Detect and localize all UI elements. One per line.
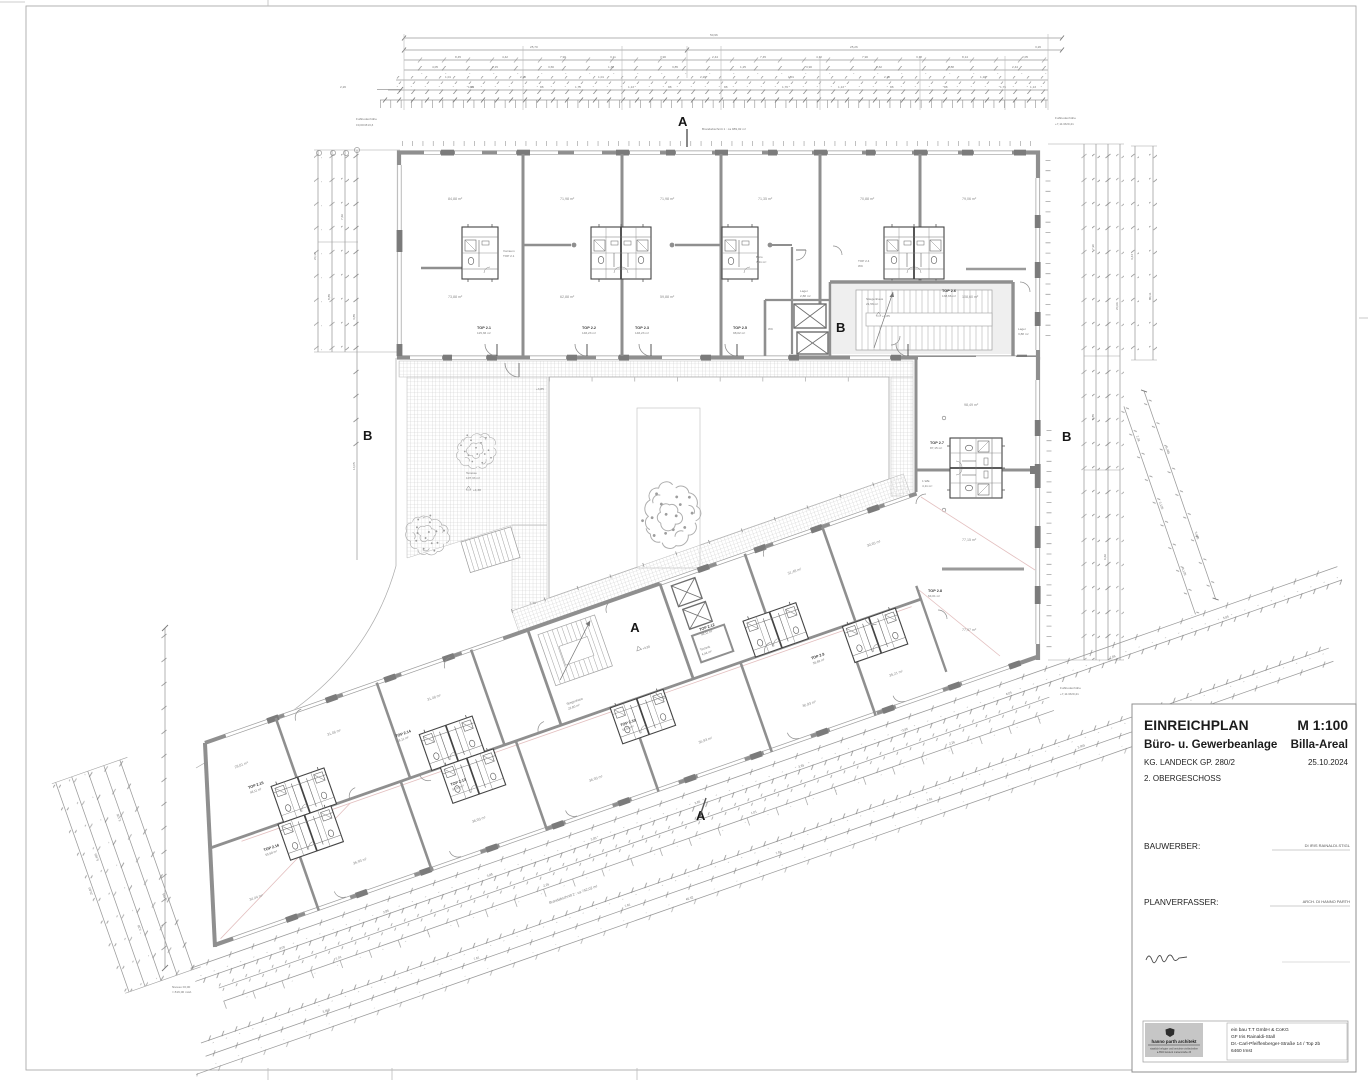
svg-text:TOP 2.5: TOP 2.5 — [733, 326, 747, 330]
svg-text:7,90: 7,90 — [862, 55, 868, 59]
svg-text:7,90: 7,90 — [660, 55, 666, 59]
svg-text:71,98 m²: 71,98 m² — [660, 197, 675, 201]
svg-text:2,05: 2,05 — [1022, 55, 1028, 59]
svg-text:3,26: 3,26 — [1035, 45, 1041, 49]
svg-text:3,88 m²: 3,88 m² — [1018, 332, 1029, 336]
svg-text:ein bau T.T GmbH & CoKG: ein bau T.T GmbH & CoKG — [1231, 1027, 1289, 1033]
svg-text:7,66: 7,66 — [340, 214, 344, 220]
svg-text:3,44: 3,44 — [1130, 254, 1134, 260]
svg-text:64,01 m²: 64,01 m² — [928, 594, 940, 598]
svg-text:TOP 2.1: TOP 2.1 — [503, 254, 515, 258]
svg-text:Terasse: Terasse — [466, 471, 477, 475]
svg-text:77,15 m²: 77,15 m² — [962, 538, 977, 542]
svg-text:115,36 m²: 115,36 m² — [477, 331, 491, 335]
svg-text:+4,38: +4,38 — [473, 488, 481, 492]
svg-text:2. OBERGESCHOSS: 2. OBERGESCHOSS — [1144, 774, 1221, 783]
svg-text:Billa-Areal: Billa-Areal — [1291, 738, 1348, 751]
svg-text:Lager: Lager — [800, 289, 808, 293]
svg-text:1,13: 1,13 — [838, 85, 844, 89]
svg-text:25.10.2024: 25.10.2024 — [1308, 758, 1349, 767]
svg-text:107,33 m²: 107,33 m² — [466, 476, 480, 480]
svg-text:50,96: 50,96 — [710, 33, 718, 37]
svg-text:1,13: 1,13 — [628, 85, 634, 89]
svg-text:62,88 m²: 62,88 m² — [560, 295, 575, 299]
svg-text:20,18: 20,18 — [313, 252, 317, 260]
svg-text:70,88 m²: 70,88 m² — [860, 197, 875, 201]
svg-text:1,38: 1,38 — [608, 65, 614, 69]
svg-text:4,05: 4,05 — [432, 65, 438, 69]
svg-text:8,45: 8,45 — [455, 55, 461, 59]
svg-text:1,18: 1,18 — [980, 75, 986, 79]
svg-text:1,13: 1,13 — [468, 85, 474, 89]
svg-text:B: B — [363, 428, 372, 443]
svg-text:6,66: 6,66 — [1103, 554, 1107, 560]
svg-text:M 1:100: M 1:100 — [1297, 718, 1348, 733]
svg-text:7,90: 7,90 — [1091, 244, 1095, 250]
svg-text:Büro- u. Gewerbeanlage: Büro- u. Gewerbeanlage — [1144, 738, 1278, 751]
svg-text:8,14: 8,14 — [962, 55, 968, 59]
svg-text:1,76: 1,76 — [782, 85, 788, 89]
svg-text:1.WE: 1.WE — [922, 479, 930, 483]
svg-text:A: A — [630, 620, 640, 635]
svg-text:1,76: 1,76 — [1000, 85, 1006, 89]
svg-text:+7,11=820,41: +7,11=820,41 — [1055, 122, 1074, 126]
svg-text:73,88 m²: 73,88 m² — [448, 295, 463, 299]
svg-text:B: B — [836, 320, 845, 335]
svg-text:WC: WC — [768, 327, 774, 331]
svg-text:14,11: 14,11 — [1148, 292, 1152, 300]
svg-text:TOP 2.6: TOP 2.6 — [942, 289, 956, 293]
svg-text:Stiegenhaus: Stiegenhaus — [866, 297, 884, 301]
svg-text:7,90: 7,90 — [560, 55, 566, 59]
svg-text:Vorraum: Vorraum — [503, 249, 515, 253]
svg-text:1,01: 1,01 — [598, 75, 604, 79]
svg-text:8,85: 8,85 — [1091, 414, 1095, 420]
svg-text:TOP 2.8: TOP 2.8 — [928, 589, 942, 593]
svg-text:a-6500 landeck malserstraße 2: a-6500 landeck malserstraße 26 — [1157, 1051, 1192, 1054]
svg-text:6460 Imst: 6460 Imst — [1231, 1048, 1253, 1054]
svg-text:DI IRIS RAINALDI-STIGL: DI IRIS RAINALDI-STIGL — [1305, 843, 1351, 848]
svg-text:4,11 m²: 4,11 m² — [922, 484, 932, 488]
svg-text:88: 88 — [540, 85, 544, 89]
svg-text:hanno parth architekt: hanno parth architekt — [1152, 1039, 1197, 1044]
svg-text:1,76: 1,76 — [575, 85, 581, 89]
svg-text:TOP 2.7: TOP 2.7 — [930, 441, 944, 445]
svg-text:2,44: 2,44 — [1012, 65, 1018, 69]
svg-text:21,56 m²: 21,56 m² — [866, 302, 878, 306]
svg-text:1,01: 1,01 — [788, 75, 794, 79]
svg-text:7,11 m²: 7,11 m² — [756, 260, 766, 264]
svg-text:4,42: 4,42 — [502, 55, 508, 59]
svg-text:PLANVERFASSER:: PLANVERFASSER: — [1144, 897, 1218, 907]
svg-text:+3,85: +3,85 — [882, 314, 890, 318]
svg-text:7,45: 7,45 — [760, 55, 766, 59]
svg-text:79,06 m²: 79,06 m² — [962, 197, 977, 201]
svg-text:20,66: 20,66 — [1115, 302, 1119, 310]
svg-text:EINREICHPLAN: EINREICHPLAN — [1144, 718, 1249, 733]
svg-text:59,88 m²: 59,88 m² — [660, 295, 675, 299]
svg-text:3,85: 3,85 — [672, 65, 678, 69]
svg-text:GF Iris Rainaldi-Stall: GF Iris Rainaldi-Stall — [1231, 1034, 1275, 1040]
svg-text:3,66: 3,66 — [548, 65, 554, 69]
svg-text:146,23 m²: 146,23 m² — [635, 331, 649, 335]
svg-text:25,70: 25,70 — [530, 45, 538, 49]
svg-text:A: A — [678, 114, 688, 129]
svg-text:88: 88 — [724, 85, 728, 89]
svg-text:TOP 2.1: TOP 2.1 — [477, 326, 491, 330]
svg-text:Fußbodenhöhe: Fußbodenhöhe — [1060, 686, 1081, 690]
svg-text:Lager: Lager — [1018, 327, 1026, 331]
svg-text:Brandabschnitt 1 : ca 989,02 m: Brandabschnitt 1 : ca 989,02 m² — [702, 127, 746, 131]
svg-text:2,26: 2,26 — [340, 85, 346, 89]
svg-text:87,15 m²: 87,15 m² — [930, 446, 942, 450]
svg-text:ARCH. DI HANNO PARTH: ARCH. DI HANNO PARTH — [1303, 899, 1351, 904]
svg-text:2,26: 2,26 — [700, 75, 706, 79]
svg-text:98,49 m²: 98,49 m² — [964, 403, 979, 407]
svg-text:77,97 m²: 77,97 m² — [962, 628, 977, 632]
svg-text:3,90: 3,90 — [806, 65, 812, 69]
svg-text:TOP 2.3: TOP 2.3 — [635, 326, 649, 330]
svg-text:2,88 m²: 2,88 m² — [800, 294, 811, 298]
svg-text:1,32: 1,32 — [876, 65, 882, 69]
svg-text:1,13: 1,13 — [1030, 85, 1036, 89]
svg-text:2,26: 2,26 — [884, 75, 890, 79]
svg-text:14,05: 14,05 — [352, 462, 356, 470]
svg-text:3,88: 3,88 — [948, 65, 954, 69]
svg-text:±0,00=813,3: ±0,00=813,3 — [356, 123, 374, 127]
svg-text:4,12: 4,12 — [816, 55, 822, 59]
svg-text:WC: WC — [858, 264, 864, 268]
svg-text:3,18: 3,18 — [916, 55, 922, 59]
svg-text:Büro: Büro — [756, 255, 763, 259]
svg-text:2,15: 2,15 — [492, 65, 498, 69]
svg-text:+3,85: +3,85 — [536, 387, 544, 391]
svg-text:= 816,00 müA: = 816,00 müA — [172, 990, 192, 994]
svg-text:98,02 m²: 98,02 m² — [733, 331, 745, 335]
svg-text:25,26: 25,26 — [850, 45, 858, 49]
svg-text:88: 88 — [944, 85, 948, 89]
svg-text:2,44: 2,44 — [712, 55, 718, 59]
svg-text:146,23 m²: 146,23 m² — [582, 331, 596, 335]
svg-text:TOP 2.2: TOP 2.2 — [582, 326, 596, 330]
svg-text:B: B — [1062, 429, 1071, 444]
svg-text:BAUWERBER:: BAUWERBER: — [1144, 841, 1200, 851]
svg-text:8,85: 8,85 — [327, 294, 331, 300]
svg-text:1,25: 1,25 — [740, 65, 746, 69]
svg-text:88: 88 — [668, 85, 672, 89]
svg-text:A: A — [696, 808, 706, 823]
svg-text:3,85: 3,85 — [352, 314, 356, 320]
svg-text:88: 88 — [890, 85, 894, 89]
svg-text:138,66 m²: 138,66 m² — [942, 294, 956, 298]
svg-text:84,88 m²: 84,88 m² — [448, 197, 463, 201]
svg-text:71,98 m²: 71,98 m² — [560, 197, 575, 201]
svg-text:Dr.-Carl-Pfeiffenberger-Straße: Dr.-Carl-Pfeiffenberger-Straße 14 / Top … — [1231, 1041, 1320, 1047]
svg-text:108,60 m²: 108,60 m² — [962, 295, 979, 299]
svg-text:KG. LANDECK GP. 280/2: KG. LANDECK GP. 280/2 — [1144, 758, 1236, 767]
svg-text:+7,11=820,41: +7,11=820,41 — [1060, 692, 1079, 696]
svg-text:1,01: 1,01 — [445, 75, 451, 79]
svg-text:Fußbodenhöhe: Fußbodenhöhe — [356, 117, 377, 121]
svg-text:71,35 m²: 71,35 m² — [758, 197, 773, 201]
svg-text:Niveau ±0,00: Niveau ±0,00 — [172, 985, 190, 989]
svg-text:Fußbodenhöhe: Fußbodenhöhe — [1055, 116, 1076, 120]
svg-text:TOP 2.4: TOP 2.4 — [858, 259, 870, 263]
svg-text:3,11: 3,11 — [610, 55, 616, 59]
